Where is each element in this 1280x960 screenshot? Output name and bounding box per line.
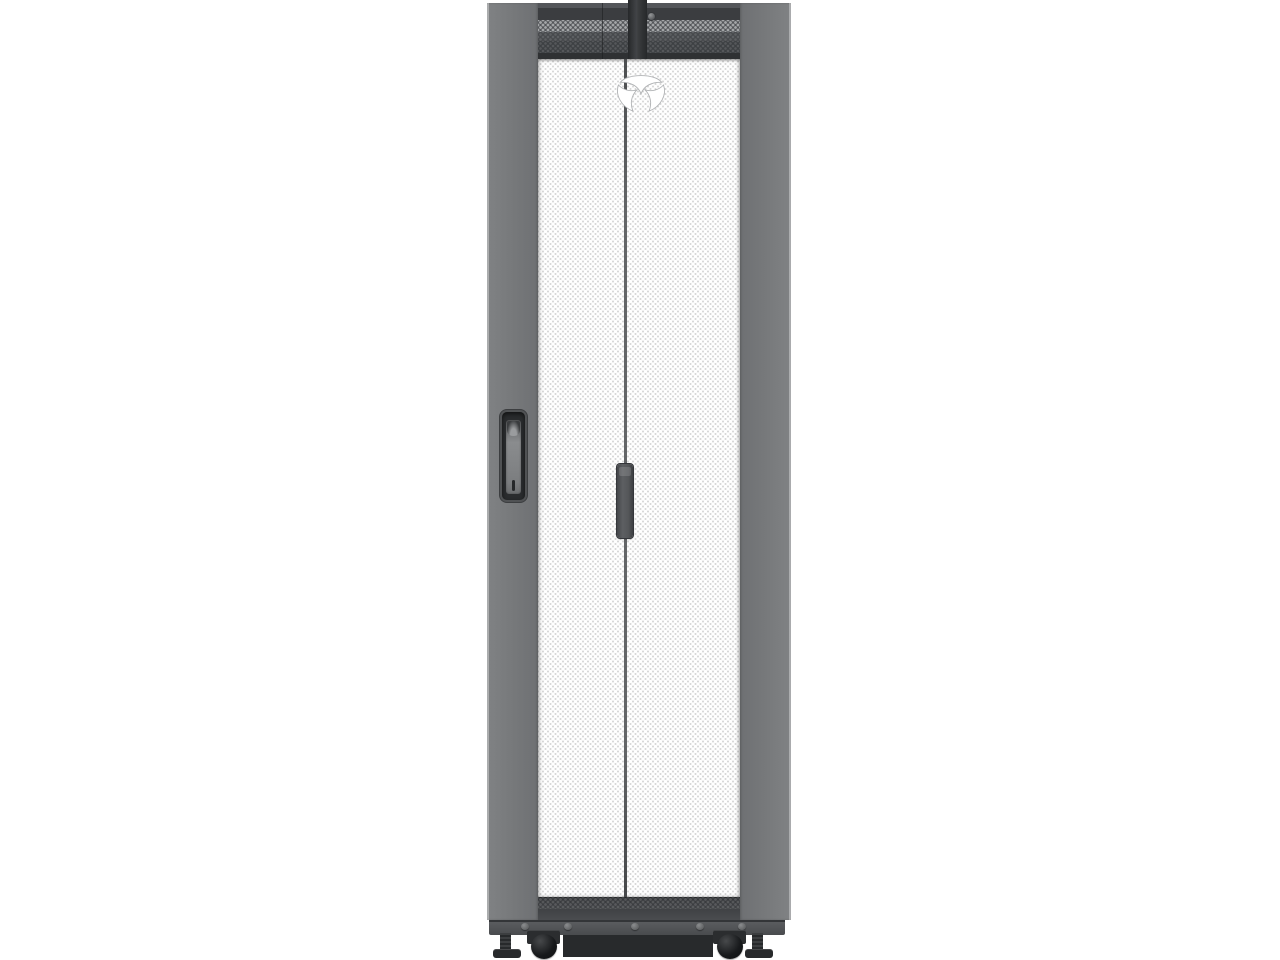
left-door-handle [502, 412, 525, 500]
keyhole-slot [512, 480, 515, 491]
side-panel-right [740, 3, 791, 920]
leveling-foot-left-base [493, 949, 521, 958]
front-mesh-door [538, 59, 740, 897]
left-door-handle-hook [507, 421, 520, 436]
door-bottom-band [538, 897, 740, 920]
caster-right-wheel [717, 934, 743, 959]
leveling-foot-right-post [752, 933, 763, 950]
bottom-recess-panel [563, 935, 713, 957]
caster-left-wheel [531, 934, 557, 959]
screw-head-icon [648, 13, 655, 20]
vertiv-logo-icon [614, 70, 668, 118]
center-handle-lock-cap [619, 467, 631, 476]
base-bolt [631, 923, 639, 930]
left-door-handle-lever [506, 420, 521, 494]
leveling-foot-right-base [745, 949, 773, 958]
page-background: { "scene": { "description": "Product pho… [0, 0, 1280, 960]
base-bolt [696, 923, 704, 930]
base-bolt [738, 923, 746, 930]
leveling-foot-left-post [500, 933, 511, 950]
rack-cabinet [487, 0, 791, 960]
header-panel-seam [602, 3, 603, 59]
base-bolt [564, 923, 572, 930]
header-center-column [628, 0, 647, 59]
base-bolt [521, 923, 529, 930]
center-door-handle [617, 464, 633, 538]
